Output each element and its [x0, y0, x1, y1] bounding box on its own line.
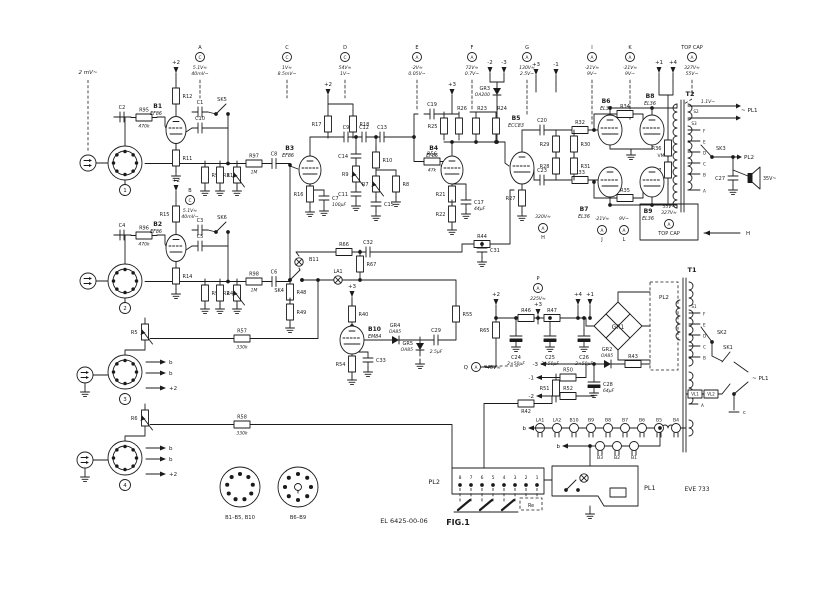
svg-text:0.05V~: 0.05V~	[408, 71, 425, 77]
svg-text:R54: R54	[336, 362, 346, 368]
rail-arrow--3: -3	[501, 60, 507, 82]
junction-dot	[481, 484, 484, 487]
rail-arrow-+3: +3	[448, 82, 457, 104]
label-d: D	[703, 151, 706, 156]
input-socket-1: 1	[108, 146, 142, 196]
svg-text:b: b	[169, 446, 173, 452]
rail-arrow-+2: +2	[492, 292, 500, 314]
resistor-r66: R66	[331, 242, 357, 256]
svg-text:Q: Q	[464, 365, 469, 371]
svg-text:C28: C28	[603, 382, 613, 388]
svg-text:R5: R5	[131, 330, 138, 336]
ground-icon	[352, 201, 361, 211]
svg-text:-1: -1	[529, 376, 534, 382]
svg-text:ECC83: ECC83	[508, 123, 524, 129]
svg-text:~ PL1: ~ PL1	[752, 376, 769, 382]
svg-text:C20: C20	[537, 118, 547, 124]
electrolytic-capacitor-c24: C242×50µF	[507, 330, 525, 367]
svg-text:C3: C3	[197, 218, 204, 224]
rail-arrow-b: b	[146, 446, 173, 453]
resistor-r96: R96470k	[131, 226, 157, 248]
svg-text:A: A	[668, 222, 671, 228]
resistor-r26: R26	[456, 106, 467, 140]
ground-icon	[201, 304, 210, 314]
svg-text:+1: +1	[586, 292, 594, 298]
lamp-icon	[295, 258, 303, 266]
test-point-j: -21V≈AJ	[595, 216, 610, 243]
svg-text:R42: R42	[521, 409, 531, 415]
ground-icon	[233, 186, 242, 196]
svg-text:9V~: 9V~	[619, 216, 629, 222]
label-c: C	[703, 162, 706, 167]
label-b: B	[703, 356, 706, 361]
capacitor-c10: C10	[192, 116, 208, 133]
jack-icon	[80, 273, 96, 289]
ground-icon	[462, 209, 471, 219]
heater-la2: LA2	[553, 418, 562, 438]
svg-text:EM84: EM84	[368, 334, 381, 340]
label-sk2: SK2	[717, 330, 727, 336]
svg-text:+2: +2	[169, 472, 177, 478]
resistor-r55: R55	[453, 300, 473, 328]
label-c: c	[743, 410, 746, 416]
junction-dot	[355, 136, 358, 139]
label-5: 5	[492, 475, 495, 481]
svg-text:OA85: OA85	[601, 353, 613, 359]
link-jumpers	[458, 500, 514, 510]
svg-text:R32: R32	[575, 120, 585, 126]
resistor-r40: R40	[349, 300, 369, 328]
heater-la1: LA1	[536, 418, 545, 438]
junction-dot	[514, 484, 517, 487]
svg-text:C9: C9	[343, 125, 350, 131]
svg-text:R11: R11	[183, 156, 193, 162]
junction-dot	[525, 484, 528, 487]
svg-text:R95: R95	[139, 108, 149, 114]
svg-text:Re: Re	[528, 503, 534, 509]
ground-icon	[518, 211, 527, 221]
svg-text:A: A	[623, 228, 626, 234]
schematic-page: AC5.1V≈40mV~CC1V≈8.5mV~DC54V≈1V~EA-2V≈0.…	[0, 0, 840, 599]
junction-dot	[651, 107, 654, 110]
label-pl2: PL2	[659, 295, 669, 301]
resistor-r27: R27	[506, 184, 526, 212]
svg-text:35V~: 35V~	[763, 176, 776, 182]
svg-text:B11: B11	[309, 257, 319, 263]
resistor-r25: R25	[428, 112, 448, 140]
svg-text:+1: +1	[655, 60, 663, 66]
label-c: C	[703, 345, 706, 350]
resistor-r57: R57330k	[229, 329, 255, 351]
svg-text:EF86: EF86	[282, 153, 294, 159]
svg-text:C4: C4	[119, 223, 126, 229]
tube-b3: B3EF86	[282, 145, 321, 184]
svg-text:OA85: OA85	[401, 347, 413, 353]
ground-icon	[364, 367, 373, 377]
switch	[565, 480, 580, 491]
capacitor-c15: C15	[371, 196, 394, 212]
svg-text:-2: -2	[529, 394, 534, 400]
label-e: E	[703, 140, 706, 145]
svg-text:2×50µF: 2×50µF	[575, 361, 593, 367]
junction-dot	[375, 136, 378, 139]
test-point-d: DC54V≈1V~	[339, 45, 352, 98]
resistor-r95: R95470k	[131, 108, 157, 130]
svg-text:4: 4	[123, 483, 127, 489]
svg-text:8: 8	[459, 475, 462, 481]
junction-dot	[732, 156, 735, 159]
junction-dot	[359, 251, 362, 254]
svg-text:A: A	[475, 365, 478, 371]
label-1: 1	[536, 475, 539, 481]
svg-text:D: D	[703, 151, 706, 156]
svg-text:S1: S1	[691, 304, 697, 309]
svg-text:C11: C11	[338, 192, 348, 198]
svg-text:-2V≈: -2V≈	[411, 65, 423, 71]
svg-text:5: 5	[492, 475, 495, 481]
ground-icon	[306, 207, 315, 217]
rail-arrow-+2: +2	[172, 60, 180, 82]
ground-icon	[478, 257, 487, 267]
svg-text:A: A	[198, 45, 202, 51]
svg-text:C26: C26	[579, 355, 589, 361]
test-point-c: CC1V≈8.5mV~	[278, 45, 297, 98]
ground-icon	[81, 387, 90, 397]
svg-text:B: B	[188, 188, 192, 194]
svg-text:b: b	[169, 360, 173, 366]
ground-icon	[448, 225, 457, 235]
svg-text:SK3: SK3	[716, 146, 726, 152]
label-8: 8	[459, 475, 462, 481]
heater	[596, 442, 605, 456]
svg-text:H: H	[541, 235, 545, 241]
test-point-a: AC5.1V≈40mV~	[191, 45, 208, 98]
junction-dot	[289, 164, 292, 167]
label-b11: B11	[309, 257, 319, 263]
svg-text:R22: R22	[436, 212, 446, 218]
test-point-b: BC5.1V≈40mV~	[181, 188, 198, 220]
svg-text:A: A	[537, 286, 540, 292]
svg-text:R98: R98	[249, 272, 259, 278]
rail-arrow-b: b	[146, 457, 173, 464]
svg-text:54V≈: 54V≈	[339, 65, 352, 71]
svg-text:470k: 470k	[138, 242, 150, 248]
figure-label: FIG.1	[446, 518, 470, 527]
pl2-connector-box	[452, 468, 544, 494]
rail-arrow-+4: +4	[669, 60, 678, 82]
resistor-r22: R22	[436, 200, 456, 228]
test-point-g: GA130V≈2.5V~	[519, 45, 535, 116]
label-f: F	[703, 312, 706, 317]
svg-text:R48: R48	[297, 290, 307, 296]
resistor-r58: R58330k	[229, 415, 255, 437]
svg-text:1V≈: 1V≈	[282, 65, 292, 71]
svg-text:A: A	[601, 228, 604, 234]
resistor-r23: R23	[473, 106, 487, 140]
svg-text:C13: C13	[377, 125, 387, 131]
svg-text:R43: R43	[628, 354, 638, 360]
svg-text:B1: B1	[631, 455, 637, 461]
svg-text:EF86: EF86	[426, 153, 438, 159]
svg-text:4: 4	[503, 475, 506, 481]
svg-text:B2: B2	[153, 221, 162, 228]
svg-text:R44: R44	[477, 234, 487, 240]
tube-b8: B8EL36	[640, 93, 664, 145]
svg-text:+2: +2	[324, 82, 332, 88]
svg-text:B1: B1	[153, 103, 162, 110]
heater-b9: B9	[587, 418, 596, 438]
svg-text:B8: B8	[605, 418, 611, 424]
svg-text:B9: B9	[588, 418, 594, 424]
junction-dot	[359, 279, 362, 282]
rail-arrow-+2: +2	[324, 82, 332, 104]
heater	[630, 442, 639, 456]
svg-text:R27: R27	[506, 196, 516, 202]
junction-dot	[496, 141, 499, 144]
svg-text:R51: R51	[540, 386, 550, 392]
svg-text:320V≈: 320V≈	[535, 214, 551, 220]
capacitor-c5: C5	[192, 234, 208, 251]
rail-arrow--2: -2	[487, 60, 492, 82]
svg-text:R67: R67	[367, 262, 377, 268]
svg-text:R17: R17	[312, 122, 322, 128]
svg-text:72V≈: 72V≈	[466, 65, 479, 71]
svg-text:+3: +3	[448, 82, 457, 88]
svg-text:R8: R8	[403, 182, 410, 188]
svg-text:EF86: EF86	[150, 229, 162, 235]
svg-text:SK6: SK6	[217, 215, 227, 221]
svg-text:C12: C12	[359, 125, 369, 131]
svg-text:GR2: GR2	[602, 347, 613, 353]
junction-dot	[289, 279, 292, 282]
rail-arrow-+3: +3	[534, 302, 543, 324]
heater-b7: B7	[621, 418, 630, 438]
rail-arrow-+2: +2	[172, 178, 180, 200]
potentiometer-r9: R9	[342, 160, 364, 188]
capacitor-c6: C6	[266, 270, 282, 287]
capacitor-c11: C11	[338, 186, 361, 202]
resistor-r15: R15	[160, 200, 180, 228]
svg-text:GR3: GR3	[479, 86, 490, 92]
svg-text:D: D	[703, 334, 706, 339]
rail-arrow-+2: +2	[146, 386, 177, 393]
svg-text:TOP CAP: TOP CAP	[657, 231, 680, 237]
svg-text:B8: B8	[646, 93, 655, 100]
svg-text:C: C	[703, 345, 706, 350]
resistor-r34: R34	[612, 104, 638, 118]
svg-text:9V~: 9V~	[625, 71, 635, 77]
svg-text:A: A	[629, 55, 632, 61]
resistor-r43: R43	[620, 354, 646, 368]
svg-text:C32: C32	[363, 240, 373, 246]
capacitor-c29: C292.5µF	[428, 328, 444, 355]
heater-b8: B8	[604, 418, 613, 438]
svg-text:T1: T1	[688, 266, 697, 274]
svg-text:R30: R30	[581, 142, 591, 148]
ground-icon	[216, 186, 225, 196]
svg-text:C19: C19	[427, 102, 437, 108]
resistor-r14: R14	[173, 262, 193, 290]
capacitor-c4: C4	[114, 223, 130, 240]
svg-text:C14: C14	[338, 154, 348, 160]
svg-text:F: F	[471, 45, 474, 51]
label-sk4: SK4	[274, 288, 284, 294]
svg-text:A: A	[416, 55, 419, 61]
svg-text:100µF: 100µF	[332, 202, 346, 208]
junction-dot	[481, 243, 484, 246]
label-pl1: ~ PL1	[741, 108, 758, 114]
resistor-r98: R981M	[241, 272, 267, 294]
svg-text:R57: R57	[237, 329, 247, 335]
svg-text:1: 1	[536, 475, 539, 481]
svg-text:R23: R23	[477, 106, 487, 112]
svg-text:B: B	[703, 173, 706, 178]
svg-text:PL2: PL2	[744, 155, 754, 161]
ground-icon	[233, 304, 242, 314]
svg-text:C: C	[343, 55, 346, 61]
svg-text:R65: R65	[480, 328, 490, 334]
svg-text:5.1V≈: 5.1V≈	[193, 65, 207, 71]
input-socket-2: 2	[108, 264, 142, 314]
svg-text:C31: C31	[490, 248, 500, 254]
svg-text:3: 3	[123, 397, 127, 403]
ground-icon	[586, 509, 595, 519]
label-7: 7	[470, 475, 473, 481]
svg-text:A: A	[591, 55, 594, 61]
input-socket-4: 4	[108, 441, 142, 491]
label-t1: T1	[688, 266, 697, 274]
svg-text:B: B	[703, 356, 706, 361]
svg-text:c: c	[743, 410, 746, 416]
svg-text:A: A	[701, 403, 704, 408]
label-f: F	[703, 129, 706, 134]
svg-text:C33: C33	[376, 358, 386, 364]
rail-arrow--1: -1	[529, 375, 556, 382]
pinout-caption-octal: B6–B9	[290, 515, 306, 521]
tube-b5: B5ECC83	[508, 115, 534, 184]
rail-arrow-+4: +4	[574, 292, 583, 314]
svg-text:B6: B6	[602, 98, 611, 105]
svg-text:R9: R9	[342, 172, 349, 178]
svg-text:VL1: VL1	[691, 392, 699, 397]
fuse-vl2: VL2	[704, 390, 718, 398]
label-h: H	[746, 231, 750, 237]
svg-text:2: 2	[525, 475, 528, 481]
svg-text:SK1: SK1	[723, 345, 733, 351]
junction-dot	[593, 363, 596, 366]
junction-dot	[711, 341, 714, 344]
svg-text:OA200: OA200	[475, 92, 490, 98]
svg-text:LA1: LA1	[333, 269, 342, 275]
svg-text:B4: B4	[673, 418, 679, 424]
rail-arrow-+1: +1	[586, 292, 594, 314]
input-socket-3: 3	[108, 355, 142, 405]
junction-dot	[495, 317, 498, 320]
svg-text:R6: R6	[131, 416, 138, 422]
ground-icon	[81, 472, 90, 482]
tube-pinout-diagram	[278, 467, 318, 507]
svg-text:VL2: VL2	[707, 392, 715, 397]
svg-text:R24: R24	[497, 106, 507, 112]
svg-text:GR4: GR4	[390, 323, 401, 329]
svg-text:P: P	[536, 276, 539, 282]
ground-icon	[372, 211, 381, 221]
resistor-r24: R24	[493, 106, 507, 140]
label-a: A	[703, 189, 706, 194]
capacitor-c23: C23	[534, 168, 550, 185]
svg-text:C: C	[188, 198, 191, 204]
junction-dot	[593, 129, 596, 132]
resistor-r47: R47	[539, 308, 565, 322]
resistor-r42: R42	[513, 400, 539, 415]
svg-text:B4: B4	[429, 145, 438, 152]
svg-text:T2: T2	[686, 90, 695, 98]
junction-dot	[609, 204, 612, 207]
svg-text:A: A	[542, 226, 545, 232]
svg-text:S2: S2	[693, 109, 699, 114]
label-b1: B1	[631, 455, 637, 461]
capacitor-c1: C1	[192, 100, 208, 117]
svg-text:0.7V~: 0.7V~	[465, 71, 479, 77]
capacitor-c12: C12	[356, 125, 372, 142]
svg-text:R58: R58	[237, 415, 247, 421]
test-point-p: PA225V≈	[530, 276, 546, 302]
ground-icon	[348, 375, 357, 385]
svg-text:B7: B7	[622, 418, 628, 424]
pl1-control-box	[552, 466, 638, 506]
svg-text:-21V≈: -21V≈	[595, 216, 610, 222]
label-s3: S3	[691, 121, 697, 126]
junction-dot	[227, 162, 230, 165]
ground-icon	[201, 186, 210, 196]
jack-icon	[77, 452, 93, 468]
svg-text:C17: C17	[474, 200, 484, 206]
svg-text:B9: B9	[644, 208, 653, 215]
pl1-connector-label: PL1	[644, 484, 656, 492]
svg-text:1M: 1M	[251, 170, 258, 176]
heater-b4: B4	[672, 418, 681, 438]
svg-text:+2: +2	[172, 178, 180, 184]
svg-text:C6: C6	[271, 270, 278, 276]
jack-icon	[80, 155, 96, 171]
transformer-t2-windings	[673, 104, 692, 208]
label-b: B	[703, 173, 706, 178]
svg-text:R2: R2	[223, 291, 230, 297]
svg-text:+2: +2	[169, 386, 177, 392]
test-point-topcap: 55V~327V≈ATOP CAP	[657, 204, 680, 237]
svg-text:+3: +3	[534, 302, 543, 308]
junction-dot	[515, 317, 518, 320]
svg-text:7: 7	[470, 475, 473, 481]
label-pl1: ~ PL1	[752, 376, 769, 382]
svg-text:C: C	[703, 162, 706, 167]
svg-text:R3: R3	[223, 173, 230, 179]
svg-text:327V≈: 327V≈	[661, 210, 677, 216]
svg-text:EL36: EL36	[600, 106, 612, 112]
svg-text:R7: R7	[362, 182, 369, 188]
label-6: 6	[481, 475, 484, 481]
capacitor-c17: C1744µF	[461, 194, 486, 212]
ground-icon	[172, 289, 181, 299]
junction-dot	[577, 317, 580, 320]
test-point-h: 320V≈AH	[535, 214, 551, 241]
svg-text:55V~: 55V~	[686, 71, 699, 77]
heater	[613, 442, 622, 456]
svg-text:R55: R55	[463, 312, 473, 318]
svg-text:2.5µF: 2.5µF	[430, 349, 443, 355]
svg-text:+4: +4	[669, 60, 678, 66]
label-re: Re	[528, 503, 534, 509]
